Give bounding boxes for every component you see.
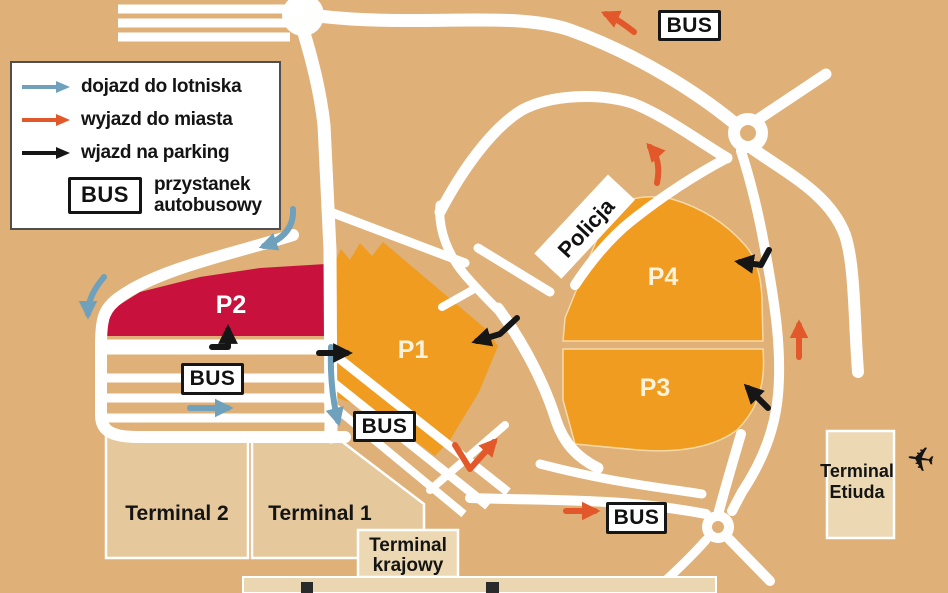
legend-label-parking-entry: wjazd na parking: [81, 142, 229, 164]
bus-stop-p2: BUS: [181, 363, 244, 395]
bus-label-line2: autobusowy: [154, 195, 262, 216]
terminal-etiuda-label-line2: Etiuda: [829, 482, 885, 502]
orange-arrow-icon: [20, 113, 72, 127]
bus-stop-south: BUS: [606, 502, 667, 534]
parking-p4-label: P4: [648, 263, 679, 291]
roundabout-north: [728, 113, 768, 153]
terminal-krajowy-label-line2: krajowy: [373, 555, 444, 576]
legend-label-to-airport: dojazd do lotniska: [81, 76, 241, 98]
parking-p2-label: P2: [216, 291, 247, 319]
road: [118, 9, 290, 37]
terminal-2-building: [106, 434, 248, 558]
legend-item-bus-stop: BUS przystanek autobusowy: [68, 175, 267, 216]
terminal-krajowy-label-line1: Terminal: [369, 535, 447, 556]
bus-stop-symbol: BUS: [68, 177, 142, 214]
terminal-1-label: Terminal 1: [268, 502, 372, 525]
airport-parking-map: Policja P2 P1 P4: [0, 0, 948, 593]
terminal-2-label: Terminal 2: [125, 502, 228, 525]
parking-p1-label: P1: [398, 336, 429, 364]
bus-stop-p1: BUS: [353, 411, 416, 442]
airplane-icon: ✈: [904, 439, 938, 481]
legend-item-to-airport: dojazd do lotniska: [20, 76, 267, 98]
cropped-text-mark: [301, 582, 313, 593]
black-arrow-icon: [20, 146, 72, 160]
legend-label-bus-stop: przystanek autobusowy: [154, 175, 262, 216]
bus-stop-north: BUS: [658, 10, 721, 41]
cropped-text-mark: [486, 582, 499, 593]
bus-label-line1: przystanek: [154, 174, 250, 195]
legend-label-to-city: wyjazd do miasta: [81, 109, 232, 131]
terminal-etiuda-label-line1: Terminal: [820, 461, 894, 481]
blue-arrow-icon: [20, 80, 72, 94]
legend-item-parking-entry: wjazd na parking: [20, 142, 267, 164]
legend-item-to-city: wyjazd do miasta: [20, 109, 267, 131]
svg-text:✈: ✈: [904, 439, 938, 481]
roundabout-south: [702, 511, 734, 543]
parking-p3-label: P3: [640, 374, 671, 402]
apron-strip: [243, 577, 716, 593]
legend: dojazd do lotniska wyjazd do miasta wjaz…: [10, 61, 281, 230]
